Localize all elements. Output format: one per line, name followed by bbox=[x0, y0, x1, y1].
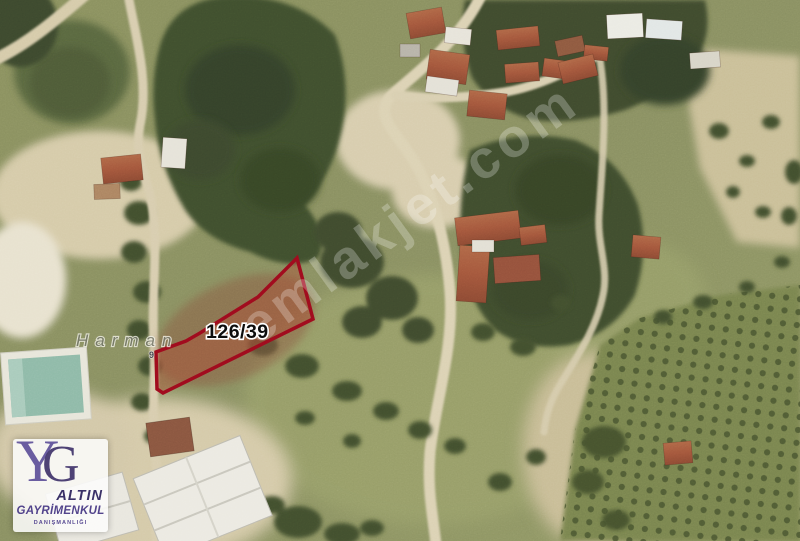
logo-subtitle: DANIŞMANLIĞI bbox=[13, 520, 108, 526]
logo-business-line: GAYRİMENKUL bbox=[13, 505, 108, 517]
photo-grain bbox=[0, 0, 800, 541]
logo-monogram-g: G bbox=[42, 439, 80, 491]
parcel-label: 126/39 bbox=[206, 321, 269, 343]
satellite-photo: emlakjet.com Harman 9 126/39 Y G ALTIN G… bbox=[0, 0, 800, 541]
place-label: Harman bbox=[76, 331, 178, 350]
minor-map-label: 9 bbox=[149, 350, 154, 360]
agency-logo: Y G ALTIN GAYRİMENKUL DANIŞMANLIĞI bbox=[13, 439, 108, 532]
logo-company-name: ALTIN bbox=[56, 488, 103, 504]
aerial-imagery: emlakjet.com Harman 9 126/39 bbox=[0, 0, 800, 541]
